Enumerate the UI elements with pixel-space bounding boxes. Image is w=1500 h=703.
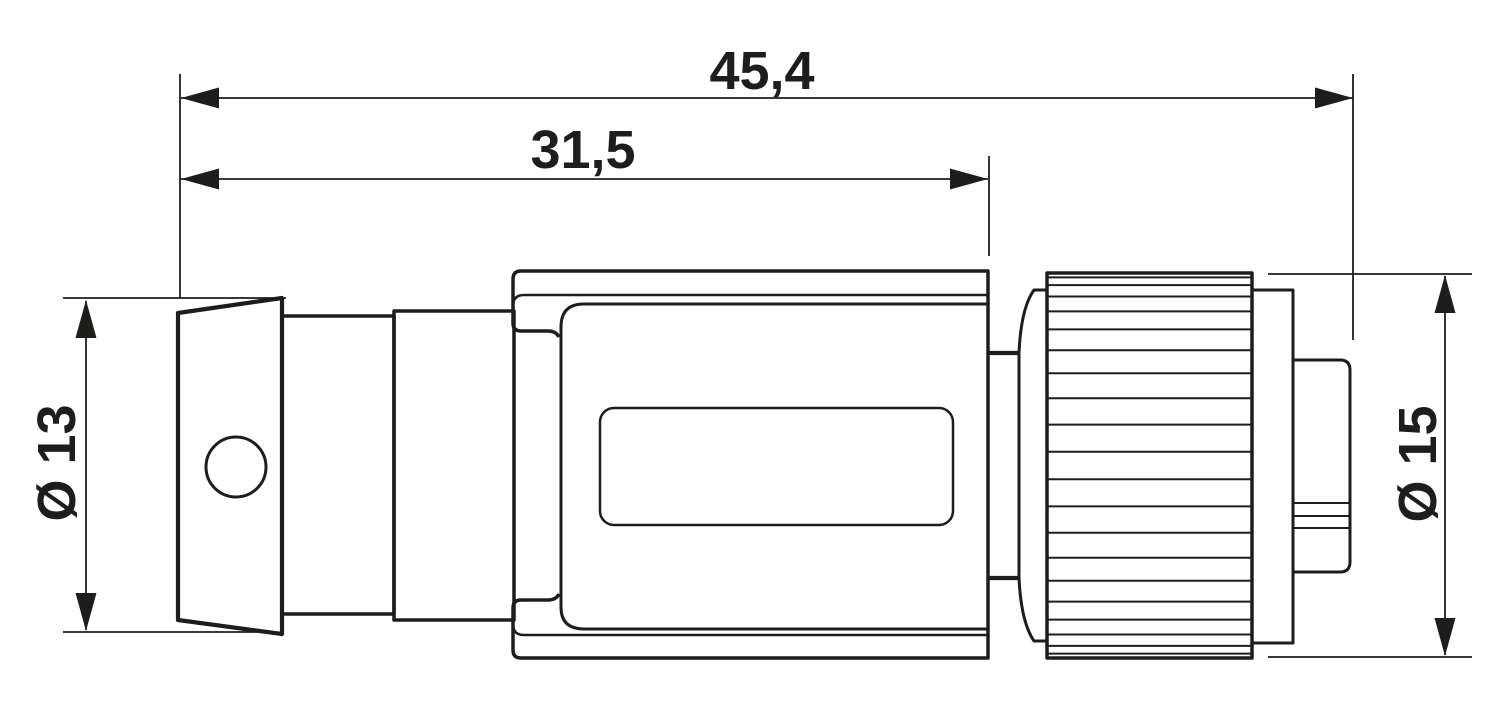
sleeve-section (282, 316, 394, 614)
arrowhead-up-icon (1435, 275, 1456, 313)
dimension-overall-length: 45,4 (181, 41, 1353, 109)
dimension-left-diameter: Ø 13 (27, 300, 97, 631)
dimension-value-right-diameter: Ø 15 (1388, 405, 1448, 522)
housing-outer-contour (513, 271, 988, 658)
arrowhead-down-icon (1435, 618, 1456, 656)
label-plate (600, 408, 953, 525)
grommet-hole (206, 437, 266, 497)
arrowhead-right-icon (1315, 88, 1353, 109)
arrowhead-down-icon (76, 593, 97, 631)
arrowhead-right-icon (950, 169, 988, 190)
arrowhead-up-icon (76, 300, 97, 338)
drawing-canvas: 45,4 31,5 Ø 13 Ø 15 (0, 0, 1500, 703)
coupling-nut (1047, 273, 1252, 658)
nut-transition-collar (1019, 290, 1047, 641)
technical-drawing: 45,4 31,5 Ø 13 Ø 15 (0, 0, 1500, 703)
knurl-ridges (1047, 277, 1252, 653)
step-section (394, 311, 514, 620)
tip-grooves (1293, 503, 1350, 528)
rear-collar (1252, 290, 1293, 643)
housing-inner-contour (561, 304, 988, 629)
dimension-value-front-section-length: 31,5 (530, 120, 635, 180)
dimension-right-diameter: Ø 15 (1388, 275, 1456, 656)
dimension-value-overall-length: 45,4 (709, 41, 814, 101)
thread-tip (1293, 360, 1350, 572)
dimension-front-section-length: 31,5 (181, 120, 988, 190)
arrowhead-left-icon (181, 169, 219, 190)
arrowhead-left-icon (181, 88, 219, 109)
dimension-value-left-diameter: Ø 13 (27, 404, 87, 521)
